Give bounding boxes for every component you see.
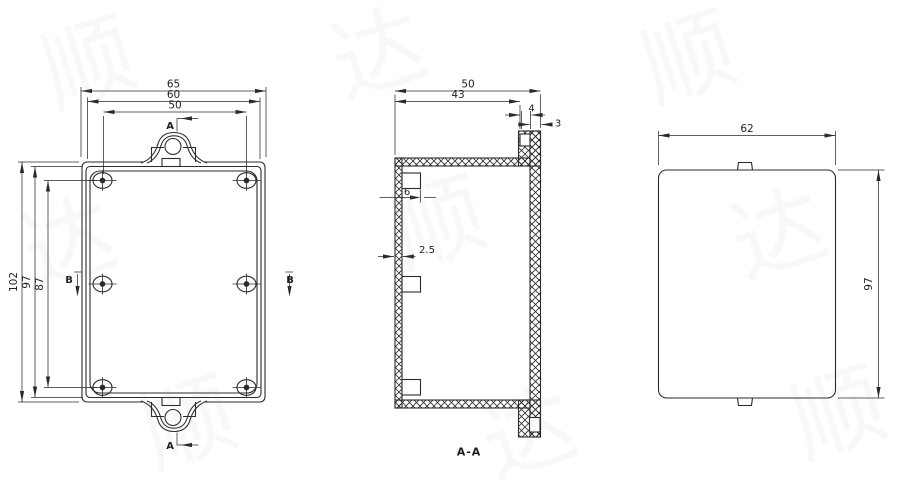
tab-hole-void-top <box>520 134 530 146</box>
latch-slot <box>162 159 180 167</box>
dim-side-width: 62 <box>740 123 753 135</box>
side-view-dim-labels: 62 97 <box>740 123 875 291</box>
section-marker-b-right: B <box>286 275 294 286</box>
dim-height-lid: 97 <box>21 275 33 288</box>
drawing-sheet: 65 60 50 102 97 87 A A B B <box>0 0 900 500</box>
side-view-dimensions <box>659 131 885 398</box>
mounting-tab-bottom <box>141 398 207 432</box>
side-view <box>659 163 836 406</box>
dim-wall-thickness: 2.5 <box>419 245 435 256</box>
dim-back-wall: 3 <box>555 119 561 130</box>
latch-slot <box>162 398 180 406</box>
dim-height-overall: 102 <box>8 272 20 292</box>
front-view-dim-labels: 65 60 50 102 97 87 A A B B <box>8 79 294 453</box>
screw-holes <box>89 170 261 398</box>
dim-hole-pitch-v: 87 <box>34 277 46 290</box>
screw-bosses <box>402 173 421 395</box>
section-marker-a-bottom: A <box>166 441 174 452</box>
dim-flange-step: 4 <box>528 104 534 115</box>
side-tab-top <box>738 163 753 171</box>
engineering-drawing-canvas: 顺 达 顺 达 顺 达 顺 达 顺 <box>0 0 900 500</box>
tab-hole-void-bottom <box>530 418 541 433</box>
front-view <box>82 133 265 432</box>
dim-hole-pitch-h: 50 <box>168 100 181 112</box>
section-marker-a-top: A <box>166 121 174 132</box>
section-label: A-A <box>457 446 482 459</box>
dim-depth-inner: 43 <box>451 89 464 101</box>
dim-boss: 6 <box>404 187 410 198</box>
dim-side-height: 97 <box>863 277 875 290</box>
section-view <box>395 131 541 437</box>
section-marker-b-left: B <box>65 275 73 286</box>
mounting-tab-top <box>141 133 207 167</box>
side-tab-bottom <box>738 398 753 406</box>
side-outline <box>659 170 836 398</box>
